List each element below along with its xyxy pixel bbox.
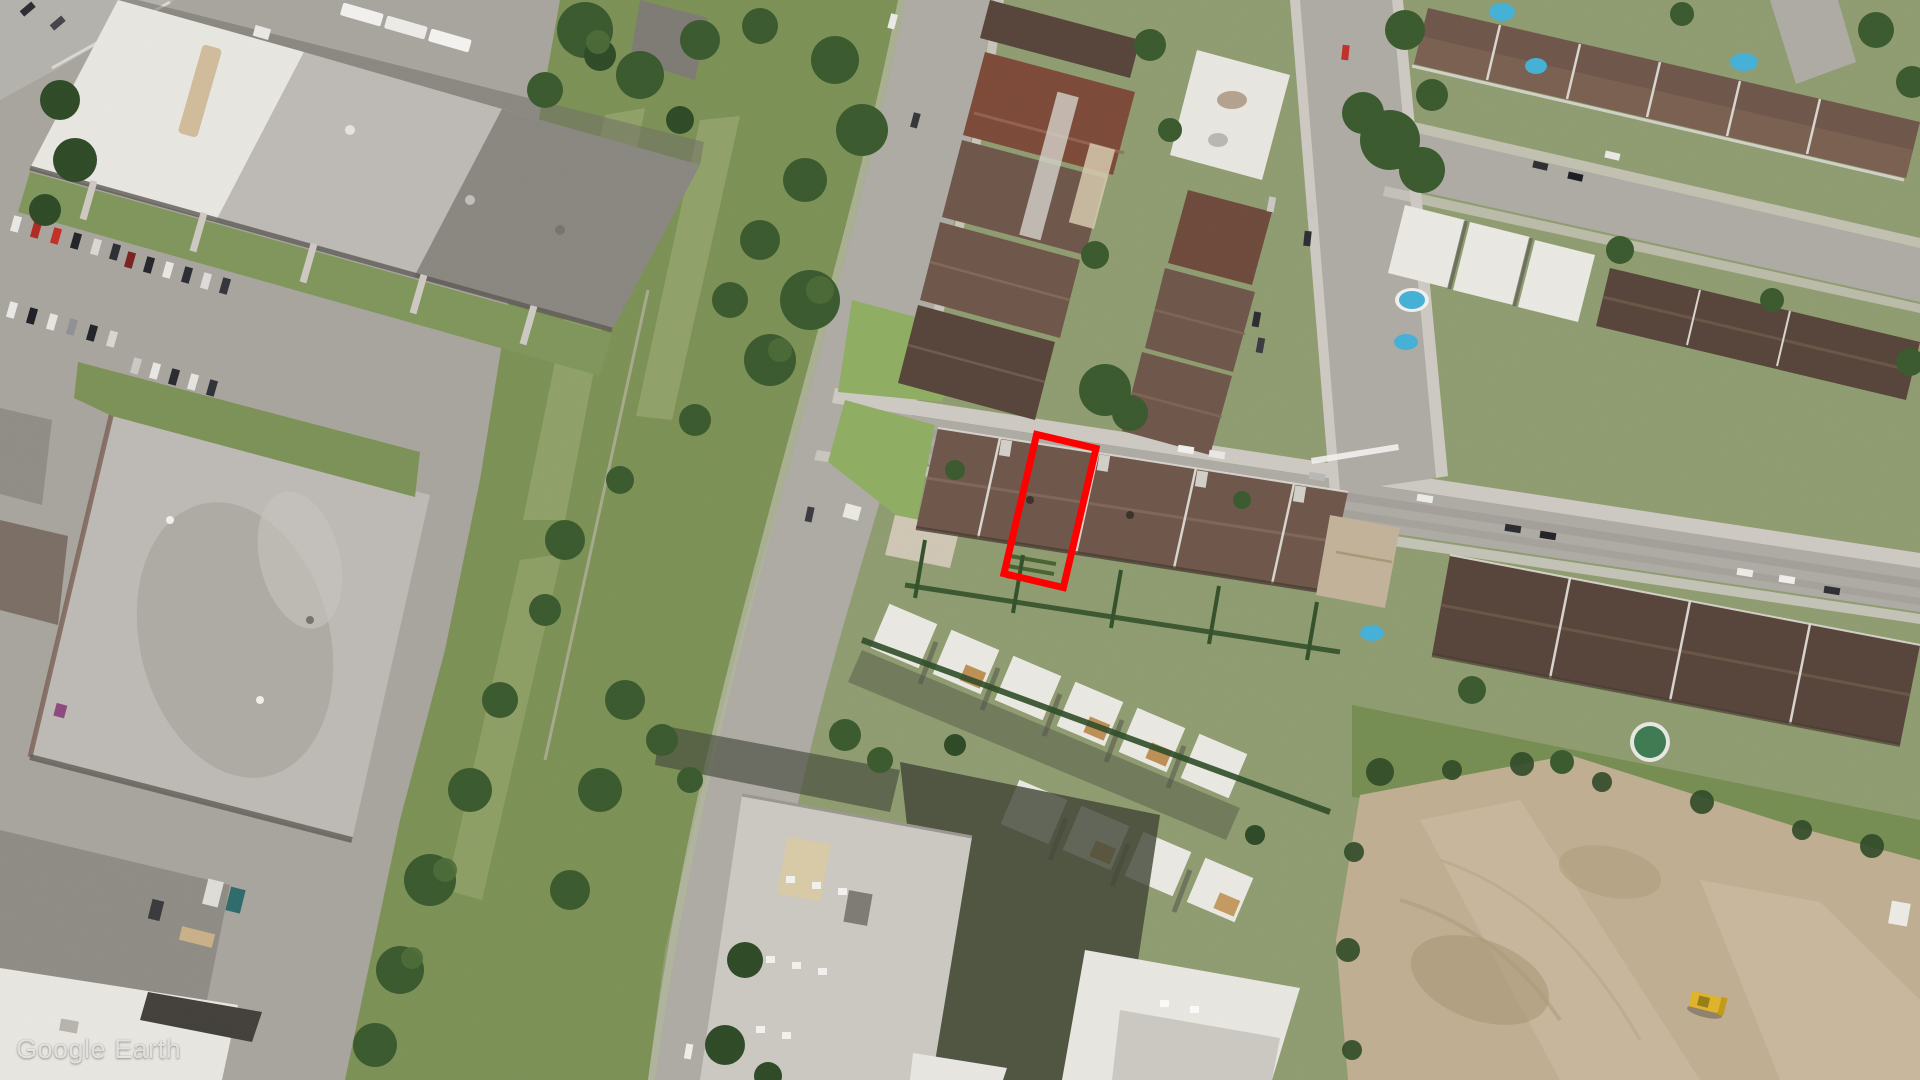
google-earth-viewport[interactable]: Google Earth <box>0 0 1920 1080</box>
photo-grain-overlay <box>0 0 1920 1080</box>
satellite-imagery[interactable] <box>0 0 1920 1080</box>
google-earth-watermark: Google Earth <box>16 1034 181 1065</box>
